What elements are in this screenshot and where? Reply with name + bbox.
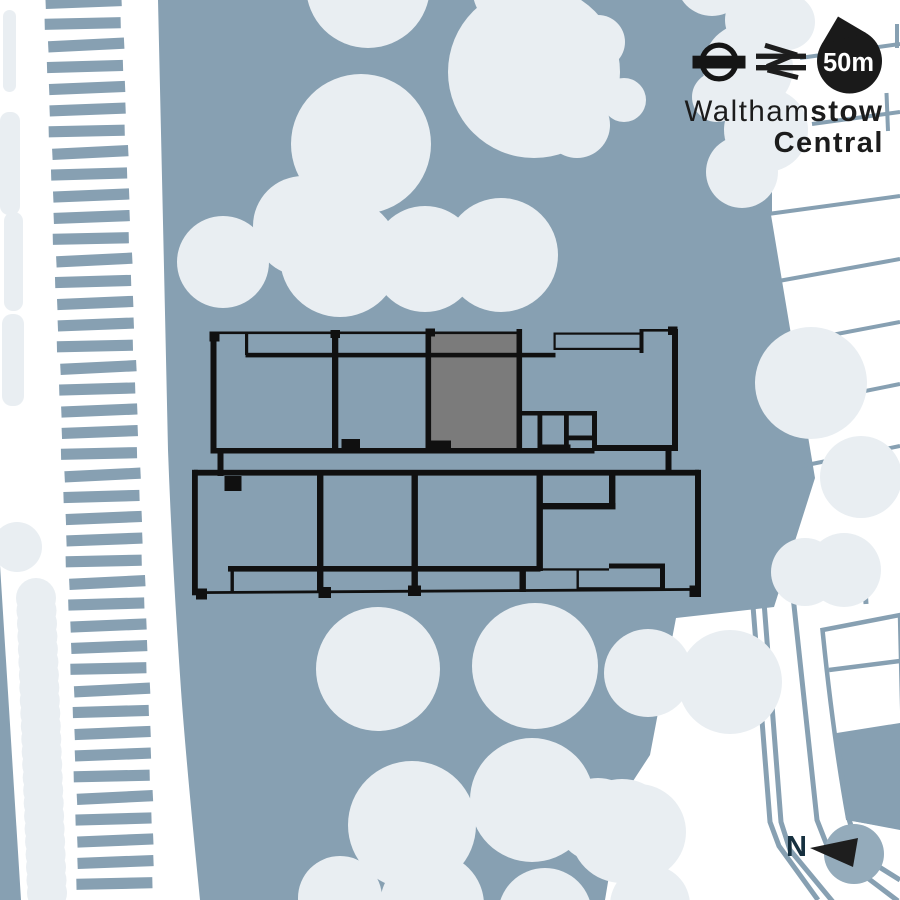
- svg-text:50m: 50m: [823, 49, 874, 77]
- svg-text:Central: Central: [774, 127, 884, 159]
- svg-text:Walthamstow: Walthamstow: [685, 95, 884, 128]
- svg-text:N: N: [786, 831, 807, 863]
